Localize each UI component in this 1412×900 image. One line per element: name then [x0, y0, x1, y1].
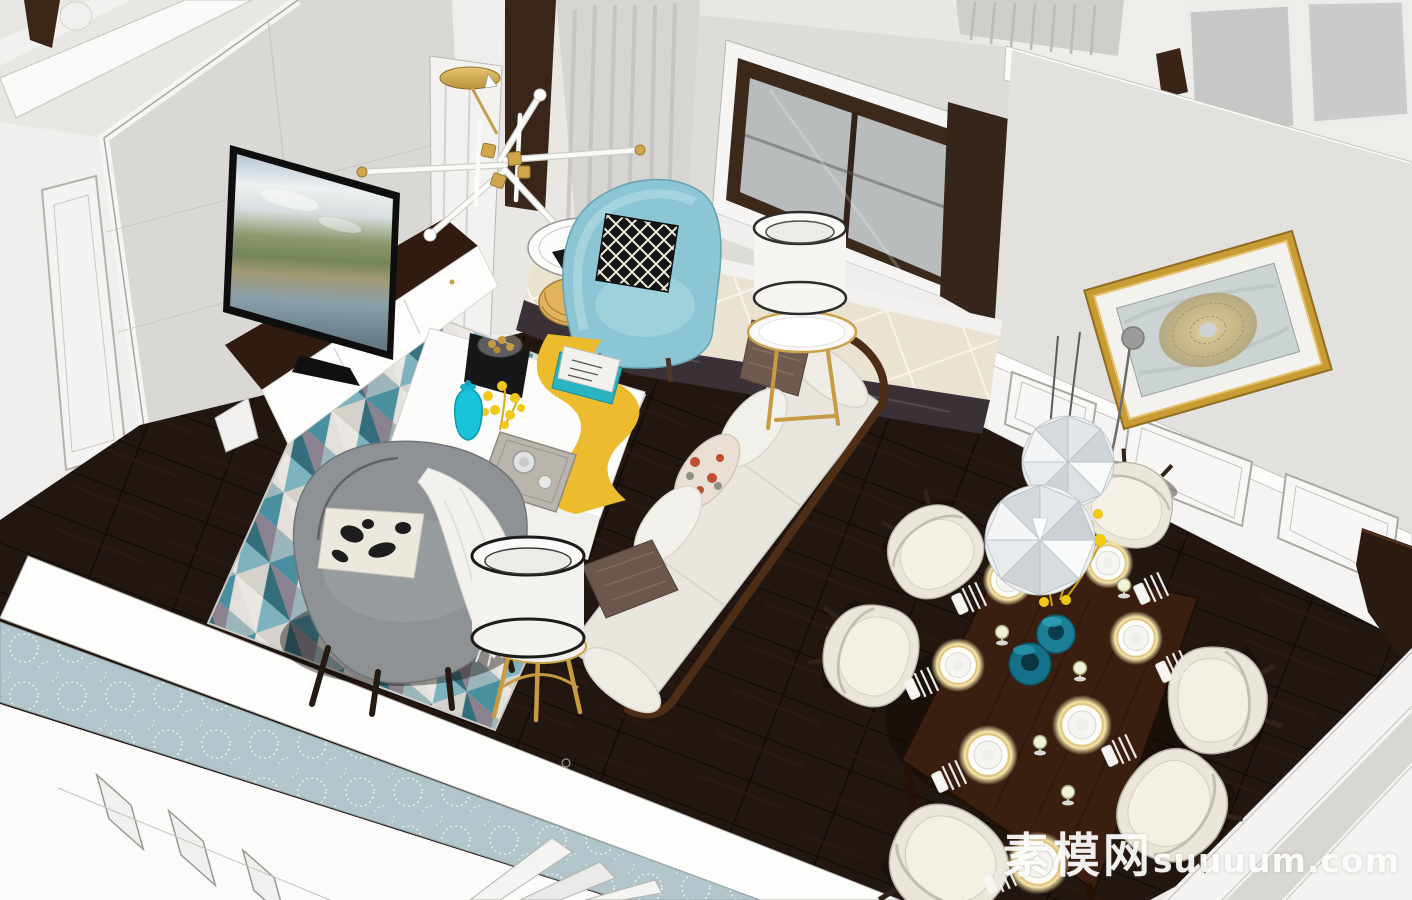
wardrobe-door	[1306, 0, 1410, 124]
animal-print-pillow	[318, 508, 424, 578]
table-lamp-2	[472, 537, 584, 657]
interior-render: 素模网suuuum.com	[0, 0, 1412, 900]
lattice-pillow	[596, 214, 678, 292]
floor-lamp-head	[1122, 327, 1144, 349]
scene-canvas	[0, 0, 1412, 900]
pendant-cluster	[985, 485, 1095, 595]
corner-object	[60, 2, 92, 30]
table-leg	[1088, 884, 1092, 900]
table-lamp-1	[754, 212, 846, 314]
wall-fill	[452, 0, 505, 70]
